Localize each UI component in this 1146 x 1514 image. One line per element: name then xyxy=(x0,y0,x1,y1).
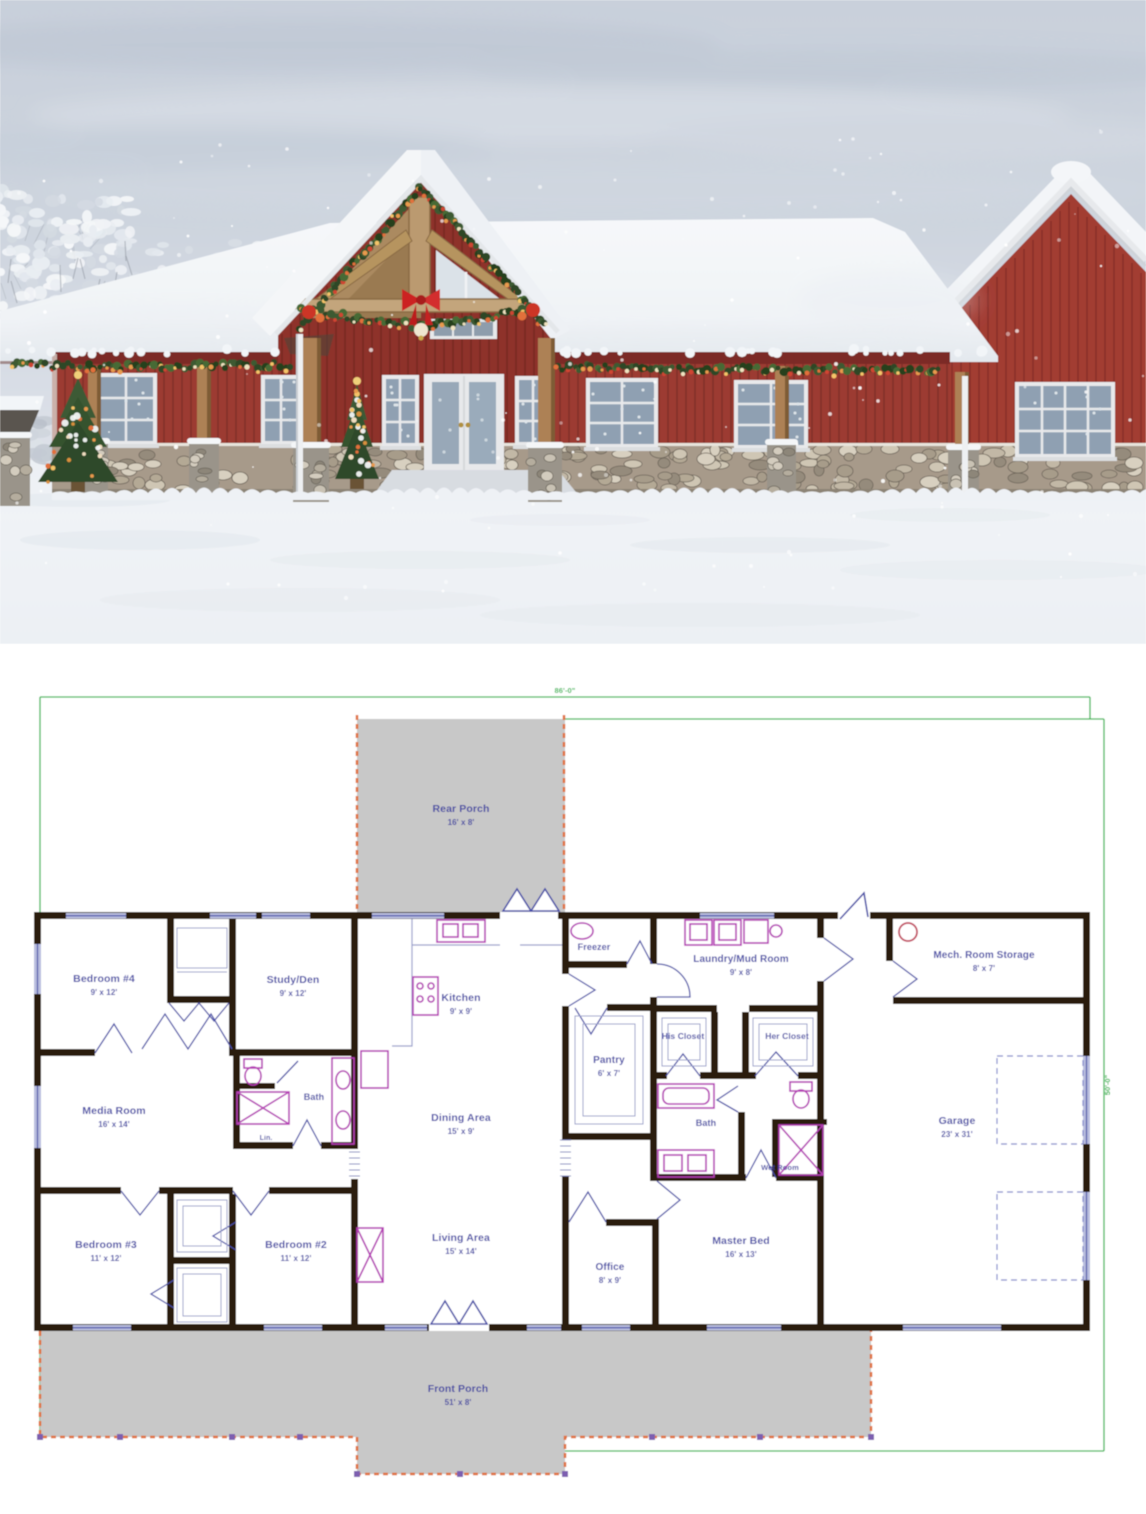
svg-text:Pantry: Pantry xyxy=(593,1055,625,1066)
svg-text:16' x 14': 16' x 14' xyxy=(98,1120,129,1129)
svg-text:15' x 14': 15' x 14' xyxy=(445,1247,476,1256)
svg-text:Living Area: Living Area xyxy=(432,1232,490,1244)
svg-text:Lin.: Lin. xyxy=(260,1135,273,1142)
svg-text:9' x 8': 9' x 8' xyxy=(730,968,752,977)
svg-text:15' x 9': 15' x 9' xyxy=(448,1127,475,1136)
svg-text:Kitchen: Kitchen xyxy=(441,992,480,1004)
svg-text:Office: Office xyxy=(596,1262,625,1273)
svg-text:Dining Area: Dining Area xyxy=(431,1112,491,1124)
svg-text:Mech. Room Storage: Mech. Room Storage xyxy=(933,950,1035,961)
svg-text:11' x 12': 11' x 12' xyxy=(91,1254,122,1263)
svg-text:Bedroom #4: Bedroom #4 xyxy=(73,973,135,985)
svg-text:6' x 7': 6' x 7' xyxy=(598,1069,620,1078)
svg-text:9' x 12': 9' x 12' xyxy=(91,988,118,997)
svg-text:Media Room: Media Room xyxy=(82,1105,145,1117)
svg-text:Wet Room: Wet Room xyxy=(761,1163,799,1172)
svg-text:16' x 8': 16' x 8' xyxy=(448,818,475,827)
svg-text:His Closet: His Closet xyxy=(662,1031,705,1041)
svg-text:9' x 9': 9' x 9' xyxy=(450,1007,472,1016)
svg-text:Rear Porch: Rear Porch xyxy=(432,803,489,815)
svg-text:16' x 13': 16' x 13' xyxy=(725,1250,756,1259)
svg-text:Garage: Garage xyxy=(939,1115,976,1127)
svg-text:50'-0": 50'-0" xyxy=(1103,1074,1112,1095)
svg-text:Laundry/Mud Room: Laundry/Mud Room xyxy=(693,954,788,965)
svg-text:Front Porch: Front Porch xyxy=(428,1383,489,1395)
svg-text:11' x 12': 11' x 12' xyxy=(281,1254,312,1263)
svg-text:Freezer: Freezer xyxy=(578,942,611,952)
svg-text:8' x 7': 8' x 7' xyxy=(973,964,995,973)
svg-text:Bedroom #2: Bedroom #2 xyxy=(265,1239,327,1251)
svg-text:8' x 9': 8' x 9' xyxy=(599,1276,621,1285)
svg-text:51' x 8': 51' x 8' xyxy=(445,1398,472,1407)
svg-text:Master Bed: Master Bed xyxy=(712,1235,770,1247)
svg-text:Bath: Bath xyxy=(696,1118,716,1128)
svg-text:Her Closet: Her Closet xyxy=(765,1031,809,1041)
svg-text:86'-0": 86'-0" xyxy=(555,686,576,695)
svg-text:Bedroom #3: Bedroom #3 xyxy=(75,1239,137,1251)
svg-text:Bath: Bath xyxy=(304,1092,324,1102)
svg-text:9' x 12': 9' x 12' xyxy=(280,989,307,998)
svg-text:23' x 31': 23' x 31' xyxy=(941,1130,972,1139)
svg-text:Study/Den: Study/Den xyxy=(267,974,320,986)
